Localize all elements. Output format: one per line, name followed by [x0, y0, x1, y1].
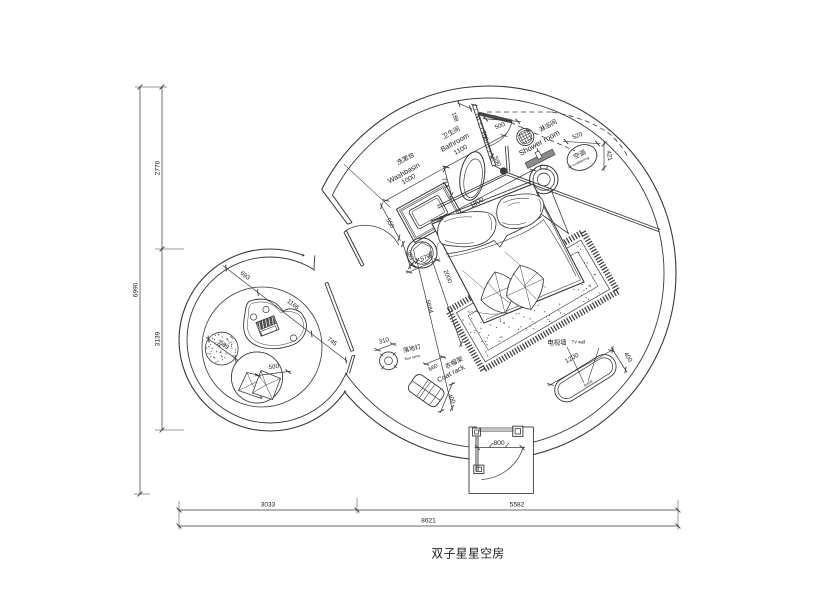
svg-text:5582: 5582 [510, 502, 525, 509]
svg-text:TV wall: TV wall [572, 340, 586, 345]
svg-text:3033: 3033 [261, 502, 276, 509]
svg-text:500: 500 [268, 363, 280, 371]
svg-text:8621: 8621 [421, 518, 436, 525]
svg-text:800: 800 [493, 440, 505, 447]
svg-text:双子星星空房: 双子星星空房 [431, 547, 504, 561]
svg-text:电视墙: 电视墙 [547, 338, 567, 347]
svg-text:3139: 3139 [155, 331, 162, 346]
svg-text:2770: 2770 [155, 160, 162, 175]
svg-text:6990: 6990 [133, 282, 140, 297]
